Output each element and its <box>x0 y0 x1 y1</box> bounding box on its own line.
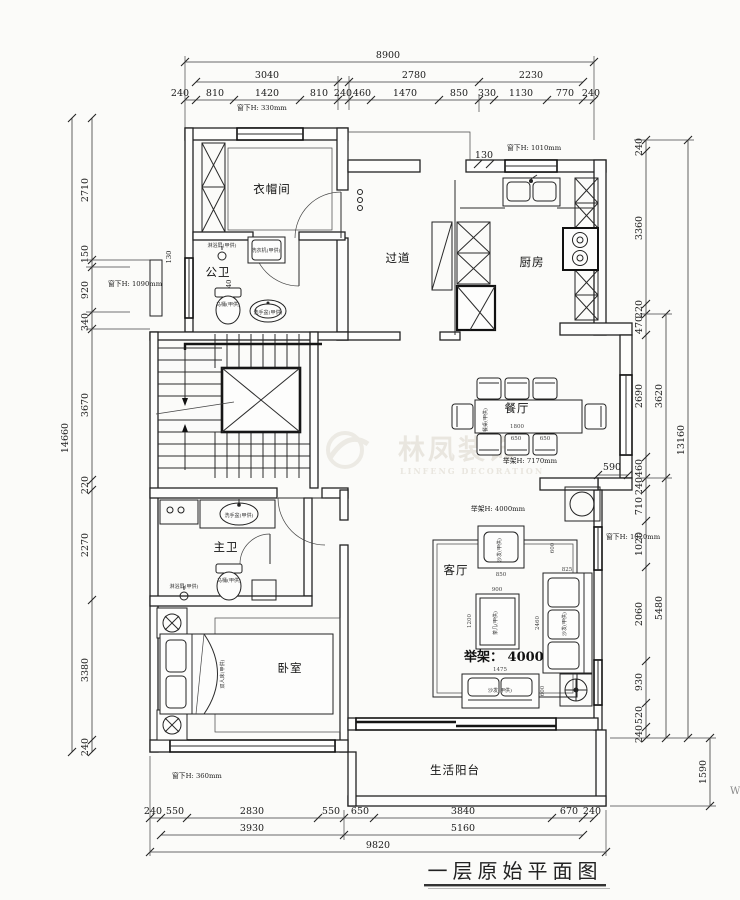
dim-bottom-9820: 9820 <box>366 840 390 851</box>
dim: 340 <box>80 313 91 331</box>
bath-cabinet <box>160 500 198 524</box>
window-kitchen-top <box>505 160 557 172</box>
sill-note-330: 窗下H: 330mm <box>237 103 287 112</box>
balcony: 生活阳台 <box>430 763 480 777</box>
dim: 3620 <box>654 384 665 408</box>
wall-divider-a <box>193 232 253 240</box>
dining-table-dim-1800: 1800 <box>510 424 524 430</box>
dining-table-label: 餐桌(甲供) <box>482 408 489 432</box>
wall-mbath-right <box>304 498 312 596</box>
toilet-label-2: 马桶(甲供) <box>217 577 241 584</box>
sofa-dim-825: 825 <box>562 567 573 573</box>
intercom-icon <box>358 198 363 203</box>
sill-note-1020: 窗下H: 1020mm <box>606 532 661 541</box>
dim: 2830 <box>240 806 264 817</box>
wall-cloakroom-right-a <box>337 128 348 190</box>
double-bed: 双人床(甲供) <box>160 634 333 714</box>
watermark-en: LINFENG DECORATION <box>400 466 544 476</box>
stairs <box>156 334 322 478</box>
window-sill-left <box>150 260 162 316</box>
room-label-balcony: 生活阳台 <box>430 763 480 777</box>
dim: 650 <box>351 806 369 817</box>
dim: 460 <box>634 459 645 477</box>
wall-living-top <box>540 478 598 490</box>
dim-top-2780: 2780 <box>402 70 426 81</box>
dining-chair <box>505 378 529 399</box>
fan-unit <box>560 674 592 706</box>
window-cloakroom-top <box>237 128 303 140</box>
dim: 3360 <box>634 216 645 240</box>
chair-dim-650: 650 <box>540 436 551 442</box>
dim: 3380 <box>80 658 91 682</box>
sofa-right: 沙发(甲供) <box>543 573 592 673</box>
dim: 1420 <box>255 88 279 99</box>
sill-note-1010: 窗下H: 1010mm <box>507 143 562 152</box>
sofa-dim-600: 600 <box>540 685 546 696</box>
window-living-right-a <box>594 527 602 570</box>
dim-balcony-1590: 1590 <box>698 760 709 784</box>
room-label-bedroom: 卧室 <box>278 661 303 675</box>
wall-dining-right-a <box>620 335 632 375</box>
dining-chair <box>477 434 501 455</box>
dim-top-2230: 2230 <box>519 70 543 81</box>
wall-mbath-top-a <box>150 488 277 498</box>
basin-public: 洗手盆(甲供) <box>250 300 286 322</box>
dim-top-3040: 3040 <box>255 70 279 81</box>
room-label-master-bath: 主卫 <box>214 540 239 554</box>
wall-bedroom-right-a <box>340 490 348 520</box>
dim: 240 <box>80 738 91 756</box>
door-master-bath <box>278 498 325 545</box>
dim: 240 <box>634 725 645 743</box>
room-label-cloakroom: 衣帽间 <box>253 182 291 196</box>
wall-balcony-right <box>596 730 606 806</box>
dim: 240 <box>634 477 645 495</box>
dim: 550 <box>322 806 340 817</box>
wall-dining-right-b <box>620 455 632 478</box>
dim-left-14660: 14660 <box>60 423 71 453</box>
dim: 3840 <box>451 806 475 817</box>
wall-balcony-bottom <box>348 796 606 806</box>
window-dining-right <box>620 375 632 455</box>
toilet-master: 马桶(甲供) <box>216 564 242 600</box>
tea-dim-900: 900 <box>492 587 503 593</box>
chair-dim-650: 650 <box>511 436 522 442</box>
washing-machine: 洗衣机(甲供) <box>248 237 285 263</box>
master-bath: 洗手盆(甲供) 主卫 马桶(甲供) 淋浴屏(甲供) <box>160 499 276 600</box>
sill-note-1090: 窗下H: 1090mm <box>108 279 163 288</box>
step-note-130-left: 130 <box>165 251 173 264</box>
dim: 810 <box>206 88 224 99</box>
dim: 590 <box>603 462 621 473</box>
wall-stair-right <box>310 332 318 488</box>
wall-step-590 <box>598 478 632 490</box>
wall-hall-b <box>440 332 460 340</box>
dim: 240 <box>634 138 645 156</box>
wall-living-bottom-b <box>556 718 598 730</box>
dim: 810 <box>310 88 328 99</box>
dim: 130 <box>475 150 493 161</box>
toilet-public: 马桶(甲供) <box>215 288 241 324</box>
dim: 220 <box>80 476 91 494</box>
wall-balcony-left <box>348 752 356 806</box>
dim: 710 <box>634 497 645 515</box>
dim: 3930 <box>240 823 264 834</box>
dim: 520 <box>634 706 645 724</box>
wall-cloakroom-right-b <box>337 238 348 340</box>
dim: 2710 <box>80 178 91 202</box>
wall-bedroom-bottom-b <box>335 740 348 752</box>
wall-kitchen-bottom <box>560 323 632 335</box>
toilet-label-1: 马桶(甲供) <box>216 301 240 308</box>
dim: 1130 <box>509 88 533 99</box>
dim: 460 <box>353 88 371 99</box>
door-master-bath-inner <box>240 534 270 564</box>
tea-table-label: 茶几(甲供) <box>492 611 499 635</box>
stair-arrow-up <box>182 424 188 432</box>
room-label-living: 客厅 <box>444 563 469 577</box>
fridge <box>457 286 495 330</box>
dim: 240 <box>171 88 189 99</box>
basin-label-1: 洗手盆(甲供) <box>254 309 283 316</box>
page-title: 一层原始平面图 <box>428 859 603 883</box>
shoe-cabinet <box>432 222 452 290</box>
room-label-kitchen: 厨房 <box>520 255 545 269</box>
title-underline <box>424 884 606 886</box>
dim: 2270 <box>80 533 91 557</box>
entry-recess <box>348 132 470 160</box>
dim: 930 <box>634 673 645 691</box>
dim: 920 <box>80 281 91 299</box>
sofa-dim-2460: 2460 <box>535 616 541 630</box>
intercom-icon <box>358 206 363 211</box>
dim: 470 <box>634 316 645 334</box>
dim: 240 <box>582 88 600 99</box>
floorplan-canvas: 林凤装饰 LINFENG DECORATION 8900 3040 2780 2… <box>0 0 740 900</box>
cloakroom: 衣帽间 <box>202 143 332 232</box>
dim: 5160 <box>451 823 475 834</box>
dim: 240 <box>583 806 601 817</box>
ceiling-note-living-big: 举架： 4000 <box>463 649 544 665</box>
dim-top-8900: 8900 <box>376 50 400 61</box>
dining-chair <box>477 378 501 399</box>
stray-w: W <box>730 786 740 797</box>
dining-chair <box>533 378 557 399</box>
dims-top: 8900 3040 2780 2230 240 810 1420 810 240… <box>171 50 600 140</box>
sofa-dim-600: 600 <box>550 542 556 553</box>
ceiling-note-living: 举架H: 4000mm <box>471 504 526 513</box>
wall-entry-top-a <box>348 160 420 172</box>
stair-handrail <box>185 344 322 350</box>
dim: 850 <box>450 88 468 99</box>
intercom-icon <box>358 190 363 195</box>
door-cloakroom <box>295 192 341 238</box>
basin-label-2: 洗手盆(甲供) <box>225 512 254 519</box>
sofa-dim-1475: 1475 <box>493 667 507 673</box>
living-room: 举架H: 4000mm 客厅 沙发(甲供) 850 600 沙发(甲供) 825… <box>433 487 600 708</box>
ceiling-note-dining: 举架H: 7170mm <box>503 456 558 465</box>
dim-right-13160: 13160 <box>676 425 687 455</box>
stove <box>563 228 598 270</box>
public-bath: 淋浴屏(甲供) 洗衣机(甲供) 公卫 马桶(甲供) 洗手盆(甲供) <box>206 237 287 324</box>
wall-bedroom-right-b <box>340 545 348 752</box>
kitchen-cabinet-left <box>457 222 490 284</box>
sofa-label: 沙发(甲供) <box>496 538 503 562</box>
dining-chair <box>452 404 473 429</box>
dim: 770 <box>556 88 574 99</box>
window-living-right-b <box>594 660 602 705</box>
kitchen-sink <box>503 175 560 206</box>
dim: 2060 <box>634 602 645 626</box>
dim: 670 <box>560 806 578 817</box>
sofa-label: 沙发(甲供) <box>561 612 568 636</box>
dim: 1470 <box>393 88 417 99</box>
title-block: 一层原始平面图 <box>424 859 610 889</box>
title-underline-shadow <box>428 888 610 889</box>
dim: 5480 <box>654 596 665 620</box>
armchair: 沙发(甲供) <box>478 526 524 568</box>
tea-dim-1200: 1200 <box>467 614 473 628</box>
room-label-corridor: 过道 <box>386 251 411 265</box>
dim: 330 <box>478 88 496 99</box>
window-balcony-slider <box>356 718 556 730</box>
bedroom: 双人床(甲供) 卧室 <box>157 608 340 740</box>
coffee-table: 茶几(甲供) <box>476 594 519 649</box>
dim: 240 <box>144 806 162 817</box>
dim: 220 <box>634 300 645 318</box>
wall-left-lower <box>150 332 158 752</box>
floorplan-page: 林凤装饰 LINFENG DECORATION 8900 3040 2780 2… <box>0 0 740 900</box>
wall-bedroom-bottom-a <box>150 740 170 752</box>
wall-living-bottom-a <box>348 718 356 730</box>
wall-divider-b <box>299 232 345 240</box>
room-label-public-bath: 公卫 <box>206 265 231 279</box>
dim: 2690 <box>634 384 645 408</box>
dining-chair <box>585 404 606 429</box>
stair-arrow-down <box>182 398 188 406</box>
bed-label: 双人床(甲供) <box>219 660 226 689</box>
sill-note-360: 窗下H: 360mm <box>172 771 222 780</box>
sofa-dim-850: 850 <box>496 572 507 578</box>
dim: 3670 <box>80 393 91 417</box>
vanity: 洗手盆(甲供) <box>200 499 275 528</box>
window-bedroom-bottom <box>170 740 335 752</box>
window-bath-left <box>185 258 193 318</box>
dim: 550 <box>166 806 184 817</box>
wall-living-right-b <box>594 570 602 660</box>
washer-label: 洗衣机(甲供) <box>252 247 281 254</box>
sofa-bottom: 沙发(甲供) <box>462 674 539 708</box>
sofa-label: 沙发(甲供) <box>488 687 512 694</box>
room-label-dining: 餐厅 <box>505 401 530 415</box>
